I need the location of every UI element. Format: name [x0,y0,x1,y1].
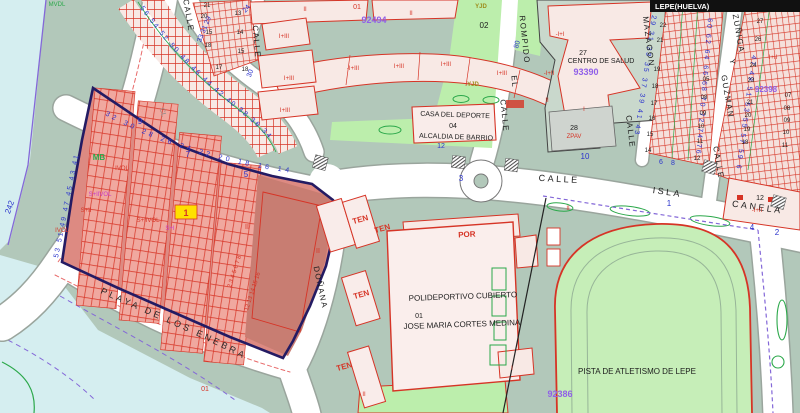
map-label-67: II [545,98,549,104]
building-top-1 [250,0,368,24]
map-label-102: 07 [785,93,792,99]
map-label-18: 9 [138,117,143,126]
map-label-20: 5 [244,170,249,179]
map-label-55: 12 [437,143,445,150]
map-label-12: 15 [238,49,245,55]
map-label-112: 2 [775,228,780,237]
map-label-80: 19 [654,67,661,73]
street-donana-south [291,366,307,413]
cadastral-map-canvas[interactable]: 56 54 52 50 48 46 44 42 40 38 36 34 32 3… [0,0,800,413]
map-label-96: 21 [747,100,754,106]
map-label-85: 14 [645,148,652,154]
map-label-45: YJD [475,4,487,10]
map-label-107: 6 [659,159,663,166]
map-label-110: -I+II [752,208,763,214]
map-label-58: 10 [581,152,590,161]
map-label-30: 01 [201,386,209,393]
map-label-22: S+IIVOL [89,192,113,198]
map-label-87: 08 [701,95,708,101]
map-label-60: 1 [667,199,672,208]
map-label-19: 7 [186,150,191,159]
map-label-11: 18 [205,43,212,49]
map-label-46: 02 [480,21,489,30]
map-label-88: 09 [700,111,707,117]
map-label-124: PISTA DE ATLETISMO DE LEPE [578,367,696,376]
map-label-41: -I+III [347,66,360,72]
map-label-111: 4 [750,223,755,232]
map-label-94: 24 [750,63,757,69]
roundabout-island [474,174,488,188]
annex-right-2 [498,348,534,378]
athletics-track-outer [555,224,752,413]
map-label-26: S+I [165,226,175,232]
bleacher-2 [547,249,560,266]
map-label-64: CENTRO DE SALUD [568,58,635,65]
crosswalk-3 [504,158,519,172]
map-label-91: 12 [694,156,701,162]
building-cluster-3 [258,86,318,120]
map-label-21: IVOL [115,166,129,172]
map-label-78: 22 [660,23,667,29]
map-label-27: II [245,224,249,231]
map-label-66: -I+II [544,71,555,77]
map-label-44: I+III [497,71,508,77]
map-label-83: 16 [649,116,656,122]
map-label-10: 14 [237,30,244,36]
map-label-42: I+III [394,64,405,70]
map-label-100: 92398 [755,85,778,94]
map-label-82: 17 [651,101,658,107]
map-label-62: -I+I [556,32,565,38]
map-title-bar: LEPE(HUELVA) [650,0,800,12]
map-title: LEPE(HUELVA) [655,2,710,11]
map-label-105: 10 [783,130,790,136]
map-label-103: 08 [784,106,791,112]
map-label-101: -I+II [767,55,778,61]
map-label-92: 27 [757,19,764,25]
annex-right-1 [515,235,538,268]
building-cluster-2 [258,50,316,88]
map-label-79: 21 [657,38,664,44]
map-label-90: 11 [697,139,704,145]
map-label-47: YJD [467,82,479,88]
map-label-95: 23 [748,78,755,84]
crosswalk-2 [451,155,466,169]
map-label-37: 92494 [361,15,386,25]
map-label-119: 01 [415,313,423,320]
map-label-109: 12 [756,195,764,202]
map-label-7: 20 [201,14,208,20]
map-label-0: MVDL [49,2,66,8]
map-label-35: II [303,7,307,13]
map-label-40: I+III [280,108,291,114]
map-label-86: 05 [703,77,710,83]
map-label-36: II [409,11,413,17]
map-label-50: EL [509,75,519,89]
map-label-93: 26 [755,37,762,43]
map-label-25: S+IIVOL [137,218,161,224]
map-label-117: POR [458,230,476,240]
map-label-29: 1 [183,208,188,218]
map-label-24: IVOL [55,228,69,234]
map-label-8: 13 [235,11,242,17]
map-label-13: 17 [216,65,223,71]
map-label-70: ZPAV [567,134,582,140]
map-label-84: 15 [647,132,654,138]
map-label-16: MB [93,153,106,162]
map-label-89: 10 [698,124,705,130]
map-label-123: II [362,392,366,398]
map-label-98: 19 [744,127,751,133]
map-label-69: 28 [570,125,578,132]
map-label-121: II [566,206,570,212]
map-label-97: 20 [745,113,752,119]
map-label-38: I+III [279,34,290,40]
bleacher-1 [547,228,560,245]
map-label-14: 18 [242,67,249,73]
map-label-125: 92386 [547,389,572,399]
map-label-28: II [316,248,320,255]
map-label-39: I+III [284,76,295,82]
map-label-23: S+II [81,208,92,214]
map-label-43: I+III [441,62,452,68]
map-label-81: 18 [652,84,659,90]
map-label-6: 21 [204,3,211,9]
map-label-34: 01 [353,4,361,11]
map-label-65: 93390 [573,67,598,77]
map-label-53: 04 [449,123,457,130]
map-label-9: 15 [206,30,213,36]
map-label-106: 11 [782,143,789,149]
map-label-104: 09 [784,118,791,124]
map-label-63: 27 [579,50,587,57]
map-viewport[interactable]: 56 54 52 50 48 46 44 42 40 38 36 34 32 3… [0,0,800,413]
map-label-57: 3 [459,174,464,183]
map-label-108: 8 [671,160,675,167]
map-label-99: 18 [742,140,749,146]
